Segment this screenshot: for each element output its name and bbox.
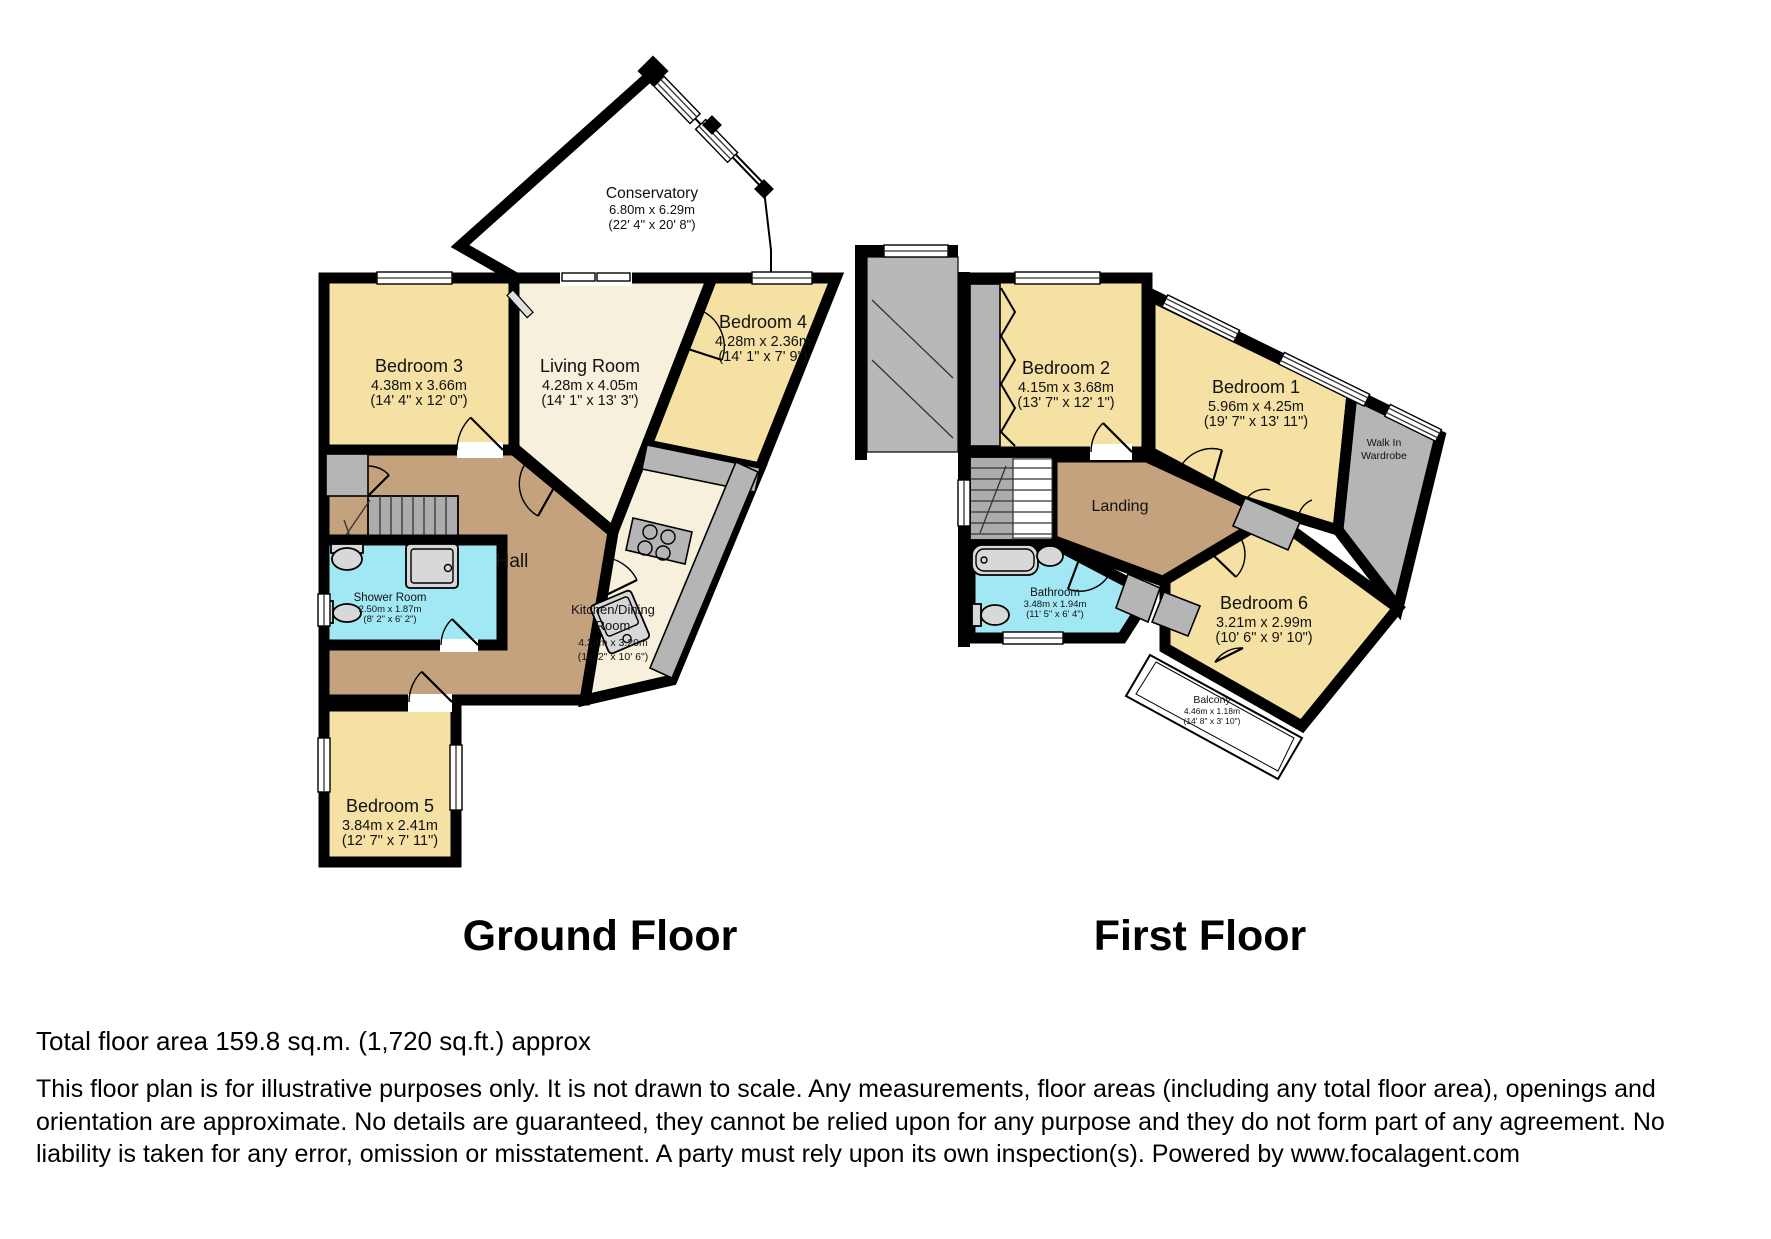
label-bedroom6: Bedroom 6 3.21m x 2.99m (10' 6" x 9' 10"… <box>1215 593 1312 646</box>
label-bedroom3: Bedroom 3 4.38m x 3.66m (14' 4" x 12' 0"… <box>370 356 467 409</box>
sink-icon <box>331 544 363 570</box>
label-landing: Landing <box>1092 498 1149 515</box>
hall-closet <box>326 454 368 496</box>
room-dims: (14' 2" x 10' 6") <box>578 651 648 663</box>
room-dims: (22' 4" x 20' 8") <box>608 217 695 232</box>
room-dims: (14' 8" x 3' 10") <box>1183 716 1240 726</box>
room-name: Bedroom 6 <box>1220 593 1308 613</box>
room-dims: (12' 7" x 7' 11") <box>342 833 438 849</box>
ground-floor-title: Ground Floor <box>463 912 738 960</box>
label-conservatory: Conservatory 6.80m x 6.29m (22' 4" x 20'… <box>606 185 698 232</box>
room-dims: (14' 1" x 13' 3") <box>541 393 638 409</box>
room-dims: (14' 4" x 12' 0") <box>370 393 467 409</box>
room-name: Walk In <box>1367 437 1402 449</box>
room-name: Balcony <box>1193 694 1231 706</box>
room-dims: (13' 7" x 12' 1") <box>1017 395 1114 411</box>
label-bedroom2: Bedroom 2 4.15m x 3.68m (13' 7" x 12' 1"… <box>1017 358 1114 411</box>
room-name: Living Room <box>540 356 640 376</box>
floorplan-page: { "colors":{ "wall":"#000000","yellow":"… <box>0 0 1771 1239</box>
total-floor-area: Total floor area 159.8 sq.m. (1,720 sq.f… <box>36 1026 1731 1057</box>
room-name: Wardrobe <box>1361 450 1407 462</box>
room-dims: (10' 6" x 9' 10") <box>1215 630 1312 646</box>
wall-segment <box>855 245 867 460</box>
footer: Total floor area 159.8 sq.m. (1,720 sq.f… <box>36 1026 1731 1171</box>
room-dims: 3.21m x 2.99m <box>1216 615 1312 631</box>
room-name: Bedroom 3 <box>375 356 463 376</box>
sink-icon <box>1037 546 1063 566</box>
stairs-first <box>970 457 1052 540</box>
label-walk-in-wardrobe: Walk In Wardrobe <box>1361 437 1407 462</box>
label-bathroom: Bathroom 3.48m x 1.94m (11' 5" x 6' 4") <box>1024 587 1087 620</box>
label-shower-room: Shower Room 2.50m x 1.87m (8' 2" x 6' 2"… <box>354 592 427 625</box>
label-hall: Hall <box>496 551 529 572</box>
room-name: Bedroom 4 <box>719 312 807 332</box>
label-bedroom4: Bedroom 4 4.28m x 2.36m (14' 1" x 7' 9") <box>715 312 811 365</box>
room-dims: (8' 2" x 6' 2") <box>363 614 416 625</box>
room-dims: 4.33m x 3.20m <box>578 637 648 649</box>
room-name: Shower Room <box>354 592 427 604</box>
room-dims: 5.96m x 4.25m <box>1208 399 1304 415</box>
toilet-icon <box>972 604 1009 626</box>
floor-plan-first: Bedroom 2 4.15m x 3.68m (13' 7" x 12' 1"… <box>855 245 1441 960</box>
room-dims: (14' 1" x 7' 9") <box>718 349 807 365</box>
room-dims: 4.15m x 3.68m <box>1018 380 1114 396</box>
room-dims: (11' 5" x 6' 4") <box>1026 609 1084 620</box>
room-name: Bedroom 5 <box>346 796 434 816</box>
room-name: Kitchen/Dining <box>571 602 655 617</box>
label-bedroom5: Bedroom 5 3.84m x 2.41m (12' 7" x 7' 11"… <box>342 796 438 849</box>
room-name: Bathroom <box>1030 587 1080 599</box>
room-dims: 4.28m x 4.05m <box>542 378 638 394</box>
room-dims: 4.46m x 1.18m <box>1184 706 1240 716</box>
room-dims: 3.84m x 2.41m <box>342 818 438 834</box>
room-dims: (19' 7" x 13' 11") <box>1204 414 1308 430</box>
room-dims: 4.38m x 3.66m <box>371 378 467 394</box>
room-dims: 4.28m x 2.36m <box>715 334 811 350</box>
room-name: Bedroom 1 <box>1212 377 1300 397</box>
room-dims: 6.80m x 6.29m <box>609 202 695 217</box>
room-name: Bedroom 2 <box>1022 358 1110 378</box>
bathtub-icon <box>972 545 1038 575</box>
floor-plan-ground: Conservatory 6.80m x 6.29m (22' 4" x 20'… <box>318 55 836 960</box>
disclaimer-text: This floor plan is for illustrative purp… <box>36 1073 1731 1171</box>
room-name: Room <box>596 618 631 633</box>
bedroom2-wardrobe <box>970 284 1000 446</box>
room-name: Conservatory <box>606 185 698 202</box>
label-living-room: Living Room 4.28m x 4.05m (14' 1" x 13' … <box>540 356 640 409</box>
stairwell-void <box>867 257 958 452</box>
shower-tray-icon <box>406 544 458 588</box>
label-bedroom1: Bedroom 1 5.96m x 4.25m (19' 7" x 13' 11… <box>1204 377 1308 430</box>
first-floor-title: First Floor <box>1094 912 1307 960</box>
french-doors <box>560 270 632 286</box>
